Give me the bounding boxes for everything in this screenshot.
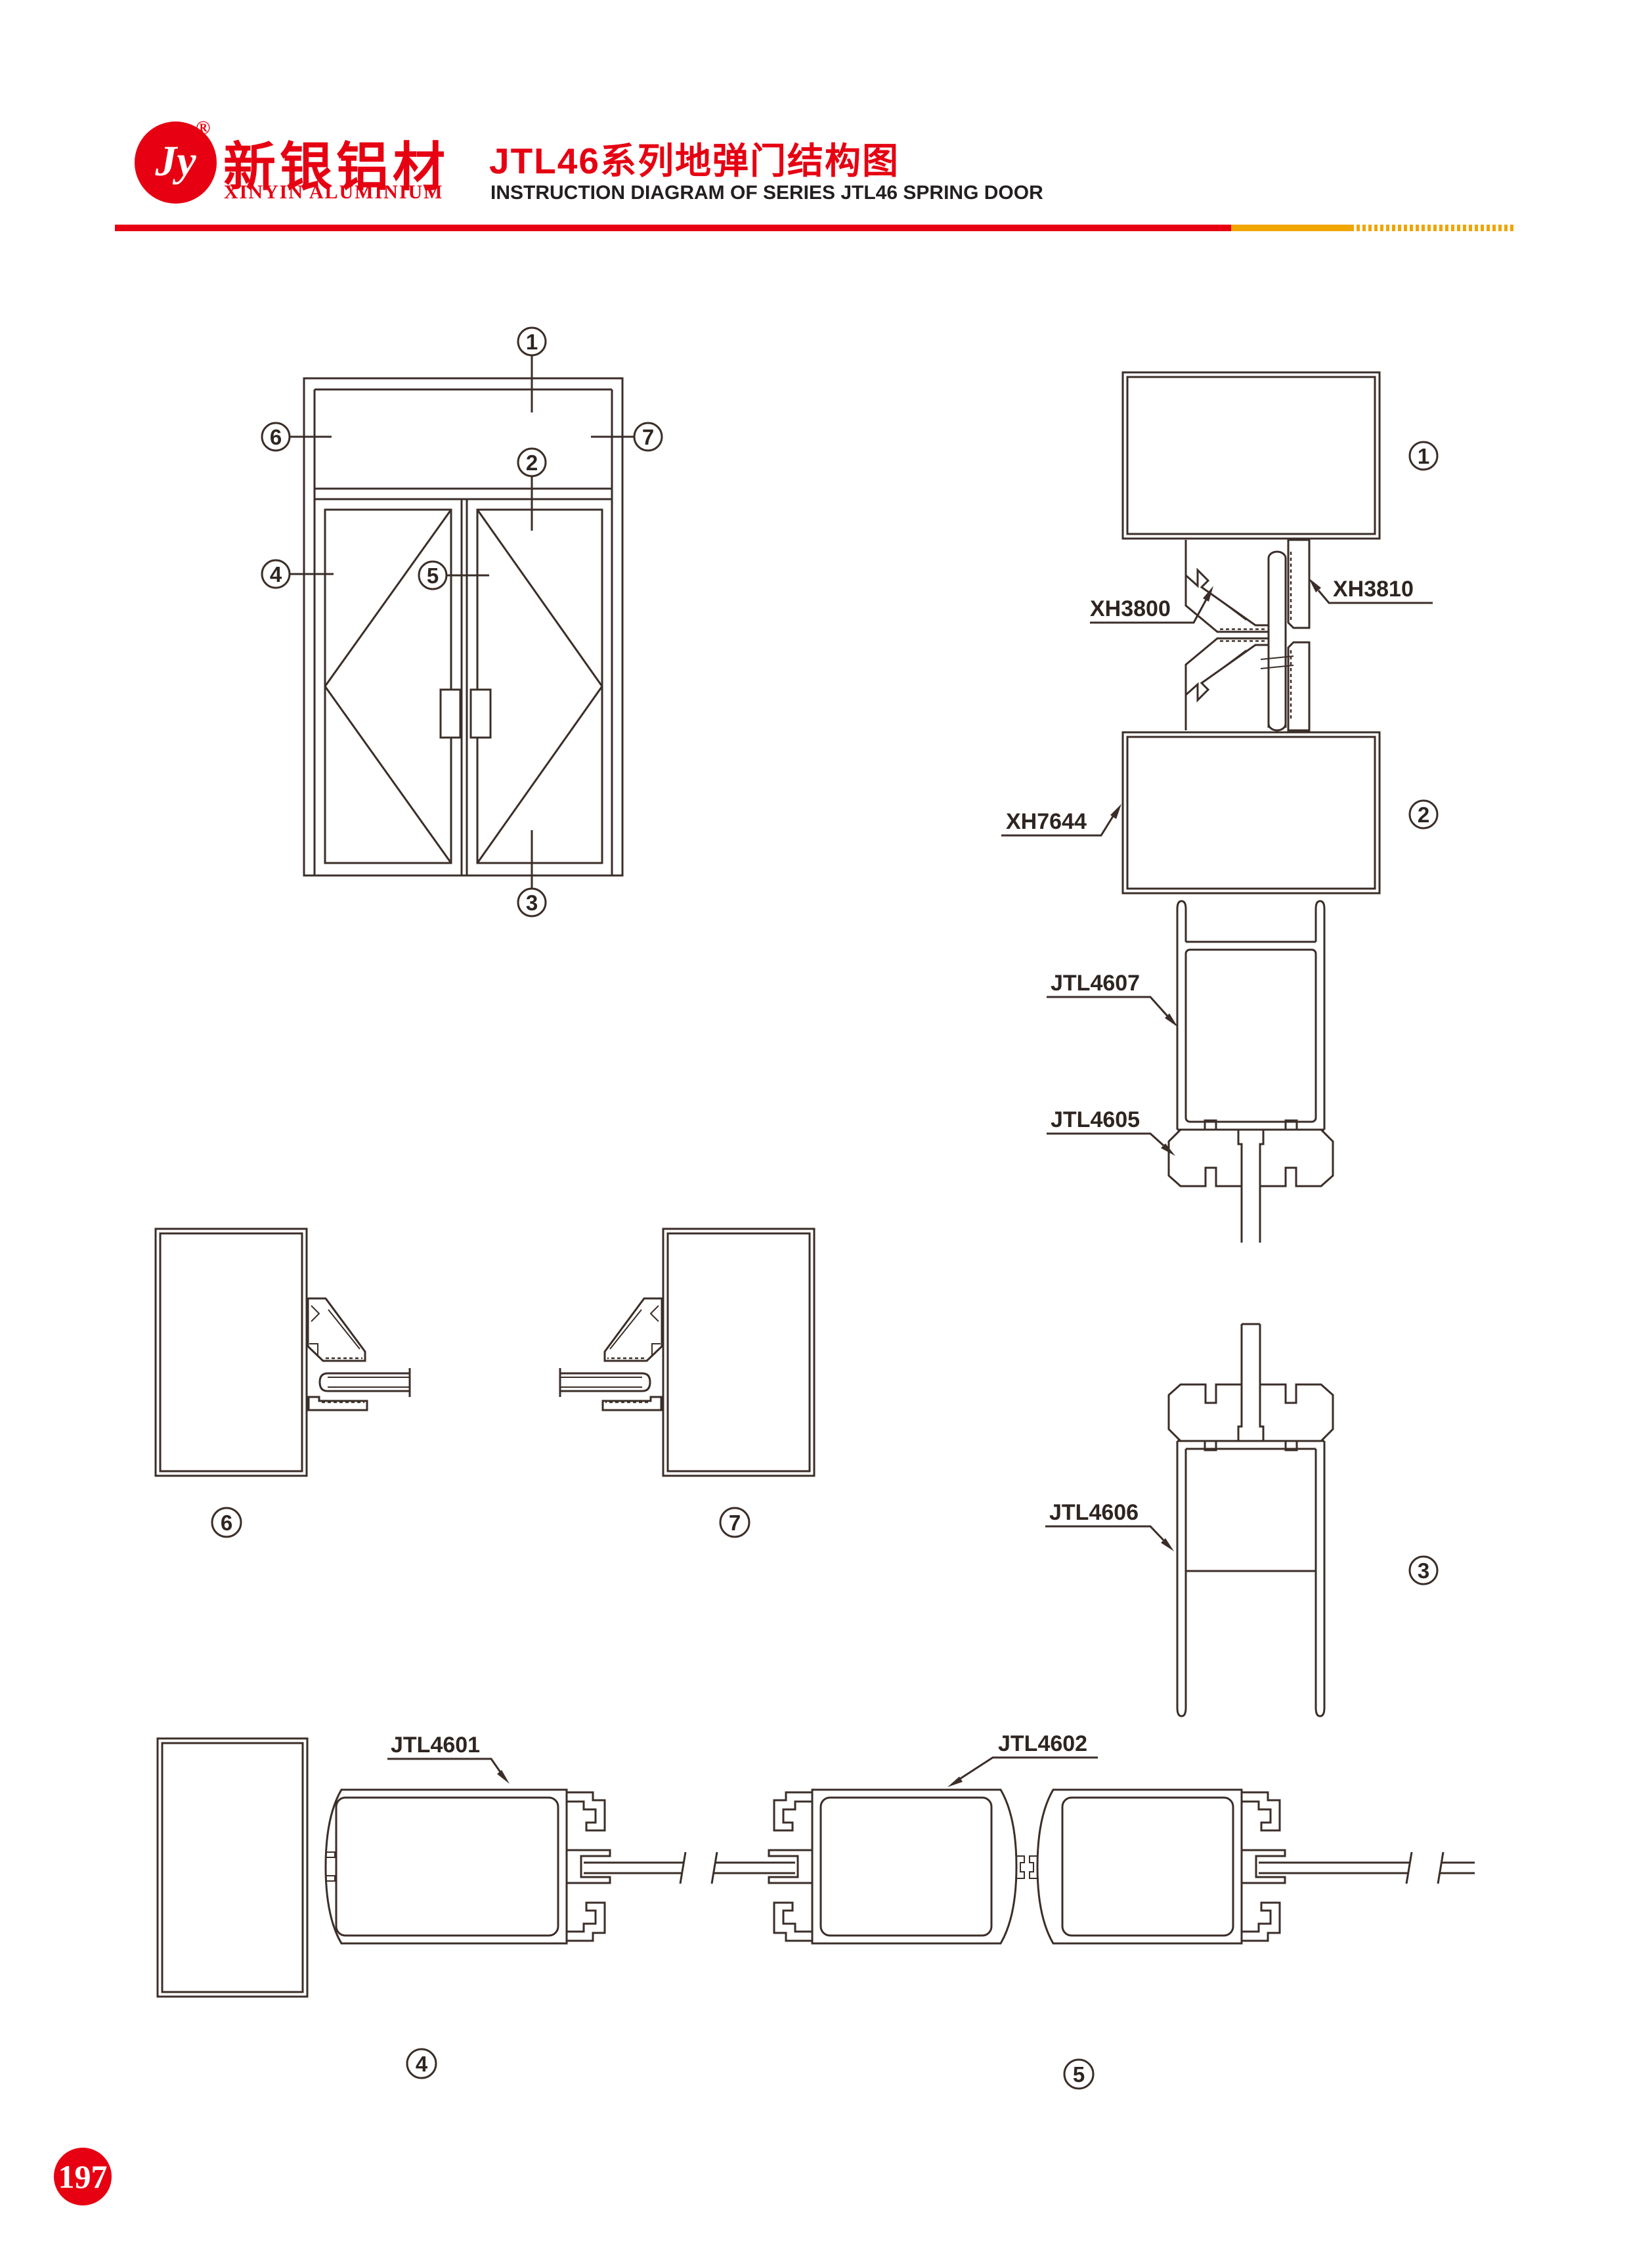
stile-5l-top-hook bbox=[774, 1792, 812, 1830]
meeting-notch-right bbox=[1030, 1856, 1037, 1878]
detail-callout-6-label: 6 bbox=[221, 1511, 232, 1535]
profile-xh3800-shape bbox=[1186, 540, 1269, 632]
jtl4601-stile-outline bbox=[326, 1790, 567, 1943]
glass-6-inner-lines bbox=[328, 1377, 410, 1387]
stile-4-glass-channel bbox=[567, 1850, 610, 1883]
glass-7-inner-lines bbox=[560, 1377, 642, 1387]
xh3800-inner-line bbox=[1209, 592, 1246, 620]
section-callout-2-label: 2 bbox=[1418, 803, 1429, 827]
diagram-canvas: 1 2 3 4 5 6 7 1 bbox=[0, 0, 1652, 2258]
label-jtl4602-leader bbox=[957, 1758, 1098, 1781]
vertical-section: 1 XH3800 XH3810 2 XH7644 JTL46 bbox=[1001, 372, 1437, 1716]
left-door-handle bbox=[441, 690, 460, 738]
jtl4607-right-prong bbox=[1316, 901, 1324, 942]
profile-xh3800-mirror bbox=[1186, 638, 1269, 730]
jamb-wall-4-inner bbox=[162, 1743, 303, 1992]
right-leaf-inner bbox=[477, 510, 602, 863]
jamb-wall-7-inner bbox=[668, 1233, 810, 1471]
callout-1-label: 1 bbox=[526, 330, 538, 354]
section-callout-3-label: 3 bbox=[1418, 1559, 1429, 1583]
wedge-profile-6-details bbox=[309, 1306, 360, 1357]
label-jtl4606: JTL4606 bbox=[1049, 1500, 1139, 1525]
jtl4607-body bbox=[1177, 942, 1324, 1130]
page-number-badge: 197 bbox=[54, 2148, 112, 2205]
meeting-stiles bbox=[462, 499, 467, 875]
label-jtl4601-leader bbox=[387, 1759, 502, 1774]
label-jtl4602: JTL4602 bbox=[998, 1731, 1087, 1756]
xh3800-mirror-inner bbox=[1209, 650, 1246, 678]
detail-5: JTL4602 5 bbox=[712, 1731, 1475, 2089]
wedge-profile-7-details bbox=[610, 1306, 661, 1357]
jtl4602-right-stile-inner bbox=[1062, 1798, 1233, 1936]
meeting-tab-left bbox=[1016, 1856, 1024, 1878]
jtl4602-right-stile-outline bbox=[1037, 1790, 1242, 1943]
transom-bottom-rail bbox=[315, 489, 612, 499]
transom-panel-1-outer bbox=[1123, 372, 1380, 539]
jtl4607-body-inner bbox=[1186, 950, 1316, 1122]
door-elevation: 1 2 3 4 5 6 7 bbox=[262, 328, 662, 916]
jtl4601-stile-inner bbox=[336, 1798, 558, 1936]
bead-6 bbox=[309, 1397, 367, 1410]
glass-vertical bbox=[1269, 552, 1286, 728]
jtl4607-left-prong bbox=[1177, 901, 1186, 942]
jtl4605-right-half bbox=[1260, 1120, 1333, 1186]
wedge-profile-7 bbox=[605, 1298, 662, 1361]
label-jtl4607: JTL4607 bbox=[1051, 971, 1140, 996]
callout-6-label: 6 bbox=[270, 425, 282, 449]
door-glass-lower bbox=[1242, 1324, 1260, 1406]
door-glass-upper bbox=[1242, 1186, 1260, 1243]
transom-member-inner bbox=[1127, 737, 1375, 889]
label-xh3810: XH3810 bbox=[1333, 577, 1414, 602]
label-jtl4606-leader bbox=[1045, 1526, 1163, 1540]
label-xh7644: XH7644 bbox=[1006, 809, 1087, 834]
label-jtl4607-leader bbox=[1047, 997, 1167, 1016]
glass-7 bbox=[560, 1368, 650, 1397]
label-jtl4601-arrowhead bbox=[497, 1770, 510, 1784]
bottom-rail-body bbox=[1177, 1441, 1324, 1708]
right-leaf-swing-diamond bbox=[477, 510, 602, 863]
jamb-wall-7-outer bbox=[663, 1229, 814, 1476]
stile-5l-glass-channel bbox=[769, 1850, 812, 1883]
stile-4-top-hook bbox=[567, 1792, 605, 1830]
detail-callout-5-label: 5 bbox=[1073, 2062, 1085, 2087]
glass-d bbox=[1438, 1852, 1475, 1884]
stile-4-bottom-hook bbox=[567, 1903, 605, 1941]
page-number: 197 bbox=[58, 2158, 108, 2196]
label-xh3800: XH3800 bbox=[1090, 596, 1171, 621]
callout-2-label: 2 bbox=[526, 451, 538, 475]
transom-member-outer bbox=[1123, 732, 1380, 893]
right-door-handle bbox=[471, 690, 490, 738]
stile-5r-glass-channel bbox=[1242, 1850, 1285, 1883]
glass-6 bbox=[320, 1368, 410, 1397]
frame-outer bbox=[304, 378, 622, 875]
jtl4605-left-half bbox=[1169, 1120, 1242, 1186]
detail-callout-4-label: 4 bbox=[416, 2052, 428, 2076]
callout-4-label: 4 bbox=[270, 562, 282, 587]
glass-vertical-bottom-cap bbox=[1269, 724, 1286, 730]
detail-6: 6 bbox=[156, 1229, 410, 1537]
wedge-profile-6 bbox=[308, 1298, 365, 1361]
detail-4: JTL4601 4 bbox=[158, 1733, 685, 2078]
label-jtl4605: JTL4605 bbox=[1051, 1107, 1140, 1132]
frame-inner bbox=[315, 389, 612, 875]
label-jtl4601: JTL4601 bbox=[391, 1733, 480, 1758]
transom-panel-1-inner bbox=[1127, 377, 1375, 534]
detail-7: 7 bbox=[560, 1229, 814, 1537]
section-callout-1-label: 1 bbox=[1418, 444, 1429, 468]
stile-5r-bottom-hook bbox=[1242, 1903, 1280, 1941]
jtl4602-left-stile-inner bbox=[821, 1798, 991, 1936]
stile-5r-top-hook bbox=[1242, 1792, 1280, 1830]
bead-7 bbox=[603, 1397, 661, 1410]
callout-3-label: 3 bbox=[526, 891, 538, 915]
jamb-wall-4-outer bbox=[158, 1738, 307, 1997]
bottom-rail-leg-caps bbox=[1177, 1708, 1324, 1716]
jamb-wall-6-inner bbox=[160, 1233, 302, 1471]
callout-5-label: 5 bbox=[427, 564, 439, 588]
jamb-wall-6-outer bbox=[156, 1229, 307, 1476]
stile-5l-bottom-hook bbox=[774, 1903, 812, 1941]
callout-7-label: 7 bbox=[642, 425, 654, 449]
jtl4602-left-stile-outline bbox=[812, 1790, 1016, 1943]
label-jtl4605-leader bbox=[1047, 1134, 1163, 1145]
detail-callout-7-label: 7 bbox=[729, 1511, 741, 1535]
